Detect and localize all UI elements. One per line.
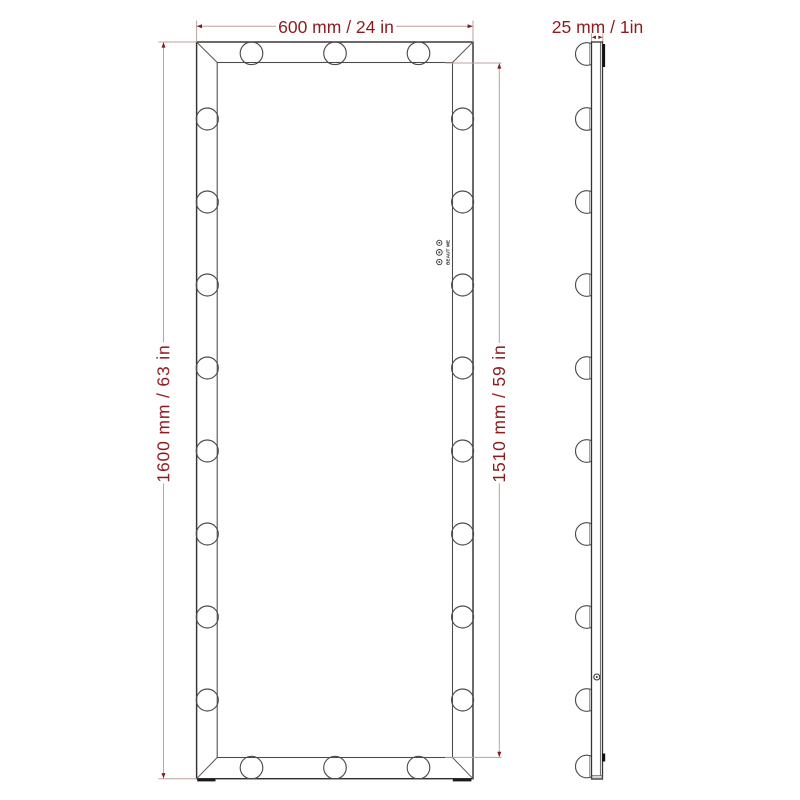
svg-text:1600 mm / 63 in: 1600 mm / 63 in <box>153 344 173 482</box>
svg-text:25 mm / 1in: 25 mm / 1in <box>552 17 643 37</box>
svg-text:1510 mm / 59 in: 1510 mm / 59 in <box>489 344 509 482</box>
svg-text:600 mm / 24 in: 600 mm / 24 in <box>278 17 394 37</box>
svg-text:BEAUT ME: BEAUT ME <box>445 239 451 265</box>
